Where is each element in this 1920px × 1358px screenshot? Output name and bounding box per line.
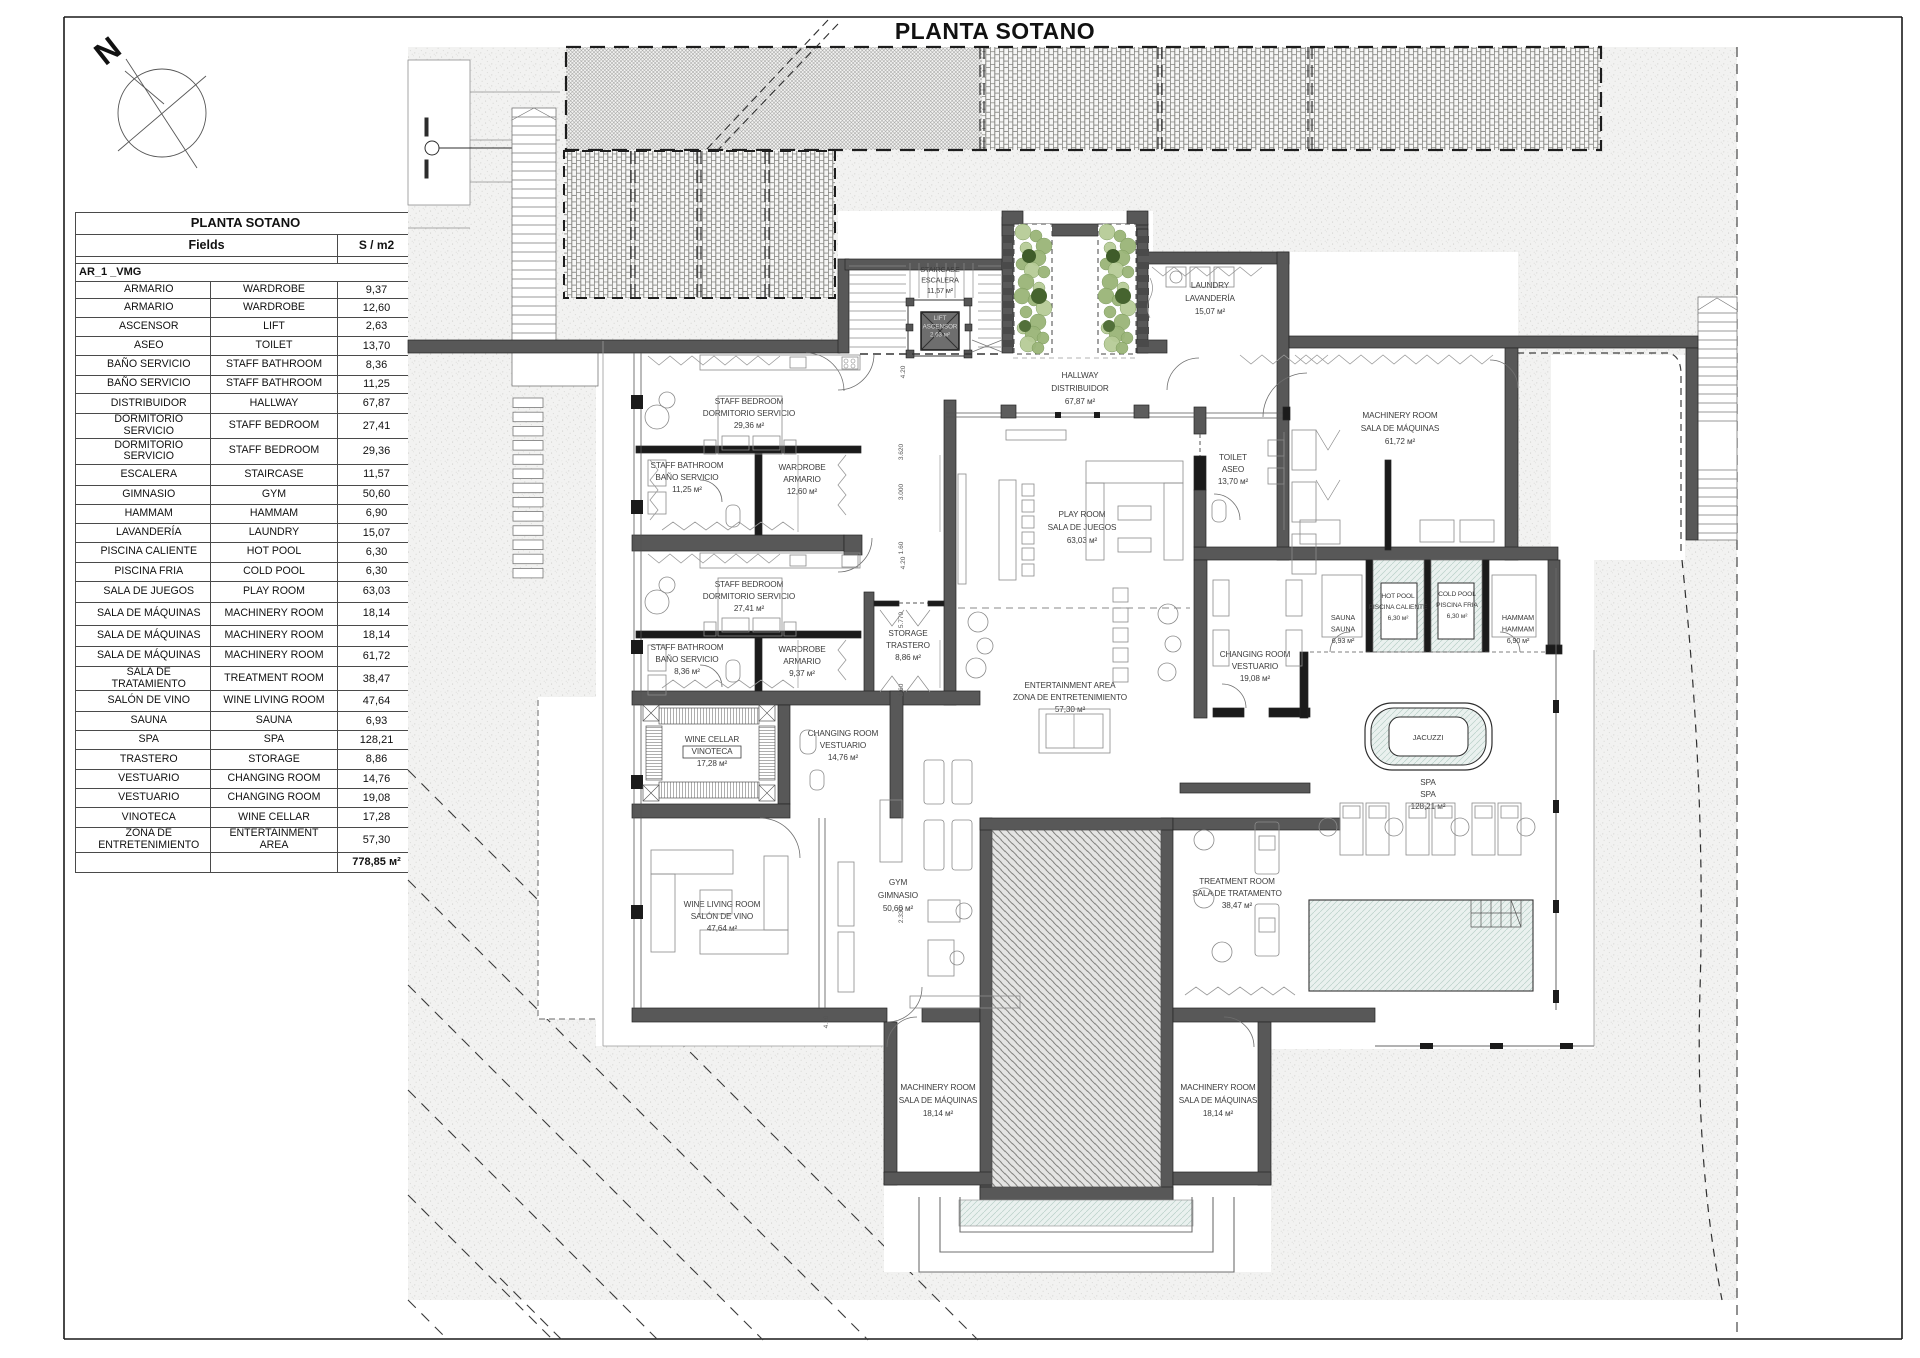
svg-text:JACUZZI: JACUZZI xyxy=(1413,733,1444,742)
svg-text:TOILETASEO13,70 м²: TOILETASEO13,70 м² xyxy=(1218,453,1249,486)
svg-text:SAUNASAUNA6,93 м²: SAUNASAUNA6,93 м² xyxy=(1331,613,1356,645)
svg-text:2.330: 2.330 xyxy=(898,906,905,923)
svg-text:4.20: 4.20 xyxy=(823,1015,830,1028)
svg-text:5.770: 5.770 xyxy=(898,611,905,628)
svg-text:4.20: 4.20 xyxy=(900,556,907,569)
svg-text:3.620: 3.620 xyxy=(898,443,905,460)
svg-text:4.20: 4.20 xyxy=(900,365,907,378)
svg-text:1.60: 1.60 xyxy=(898,541,905,554)
svg-text:3.000: 3.000 xyxy=(898,483,905,500)
